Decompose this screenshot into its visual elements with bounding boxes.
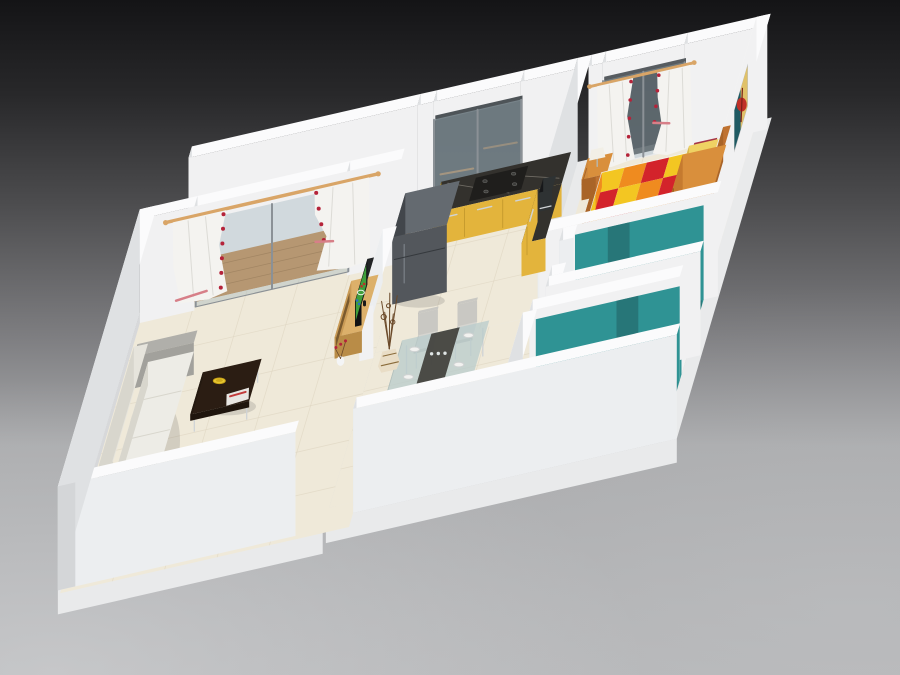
stove-burner (483, 180, 487, 183)
dinner-plate (464, 333, 474, 338)
stove-burner (512, 183, 516, 186)
curtain-tieback (316, 241, 333, 242)
stove-burner (511, 172, 515, 175)
fruit-bowl-inner (216, 379, 223, 382)
dinner-plate (403, 375, 413, 380)
dinner-plate (410, 347, 420, 352)
dining-chair-back (418, 306, 438, 335)
living-curtain-left (173, 210, 228, 303)
apartment-3d-floor-plan (0, 0, 900, 675)
dining-chair-back (458, 297, 478, 326)
dinner-plate (454, 362, 464, 367)
render-stage (0, 0, 900, 675)
decor-twig (389, 293, 390, 349)
stove-burner (484, 190, 488, 193)
